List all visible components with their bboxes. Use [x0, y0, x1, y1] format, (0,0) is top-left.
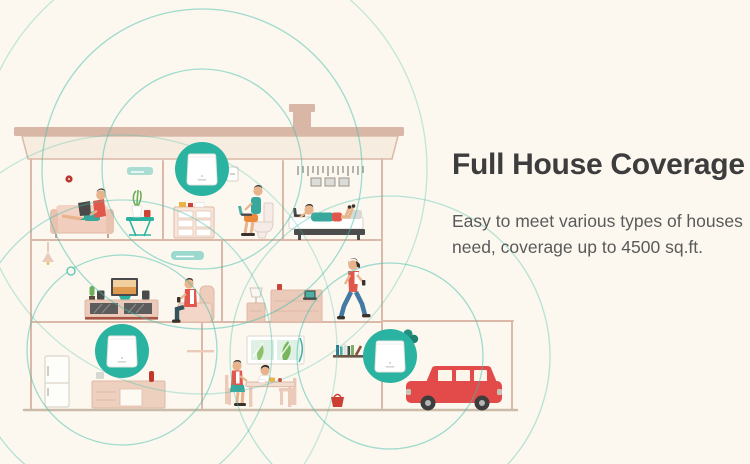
dining-table: [246, 378, 295, 408]
feature-heading: Full House Coverage: [452, 148, 742, 182]
feature-description-line1: Easy to meet various types of houses: [452, 208, 742, 234]
laptop-icon: [305, 291, 315, 298]
mesh-router-icon: [175, 142, 229, 196]
red-basket: [331, 397, 344, 407]
window: [247, 336, 304, 364]
chimney: [293, 111, 311, 128]
room-study: [247, 258, 371, 322]
mesh-router-icon: [363, 329, 417, 383]
side-table: [126, 190, 154, 236]
tv-console: [85, 278, 158, 320]
ac-unit-icon: [127, 167, 153, 175]
car: [406, 366, 502, 411]
bathroom-dresser: [174, 202, 214, 238]
book-shelf: [333, 345, 365, 358]
fridge: [45, 356, 69, 407]
ac-unit-icon: [171, 251, 204, 260]
red-vase: [277, 284, 282, 290]
phone-icon: [177, 297, 180, 303]
plant-icon: [133, 190, 141, 206]
mesh-router-icon: [95, 324, 149, 378]
wall-shelf: [187, 350, 214, 352]
pendant-lamp: [42, 242, 54, 265]
phone-icon: [362, 280, 365, 286]
room-dining: [225, 336, 344, 407]
feature-description-line2: need, coverage up to 4500 sq.ft.: [452, 234, 742, 260]
wall-hanging-blinds: [298, 166, 363, 176]
feature-description: Easy to meet various types of houses nee…: [452, 208, 742, 260]
cactus-icon: [89, 286, 95, 300]
person-walking: [337, 258, 371, 319]
wine-bottle: [149, 371, 154, 382]
speaker-right: [142, 291, 150, 300]
wifi-node-dot: [67, 267, 75, 275]
red-mug: [144, 210, 151, 217]
chimney-cap: [289, 104, 315, 112]
picture-frames: [311, 178, 349, 186]
roof-bar: [14, 127, 404, 136]
product-feature-banner: Full House Coverage Easy to meet various…: [0, 0, 750, 464]
wifi-ring: [0, 0, 427, 394]
wall-clock-center: [68, 178, 70, 180]
feature-text-panel: Full House Coverage Easy to meet various…: [452, 148, 742, 260]
